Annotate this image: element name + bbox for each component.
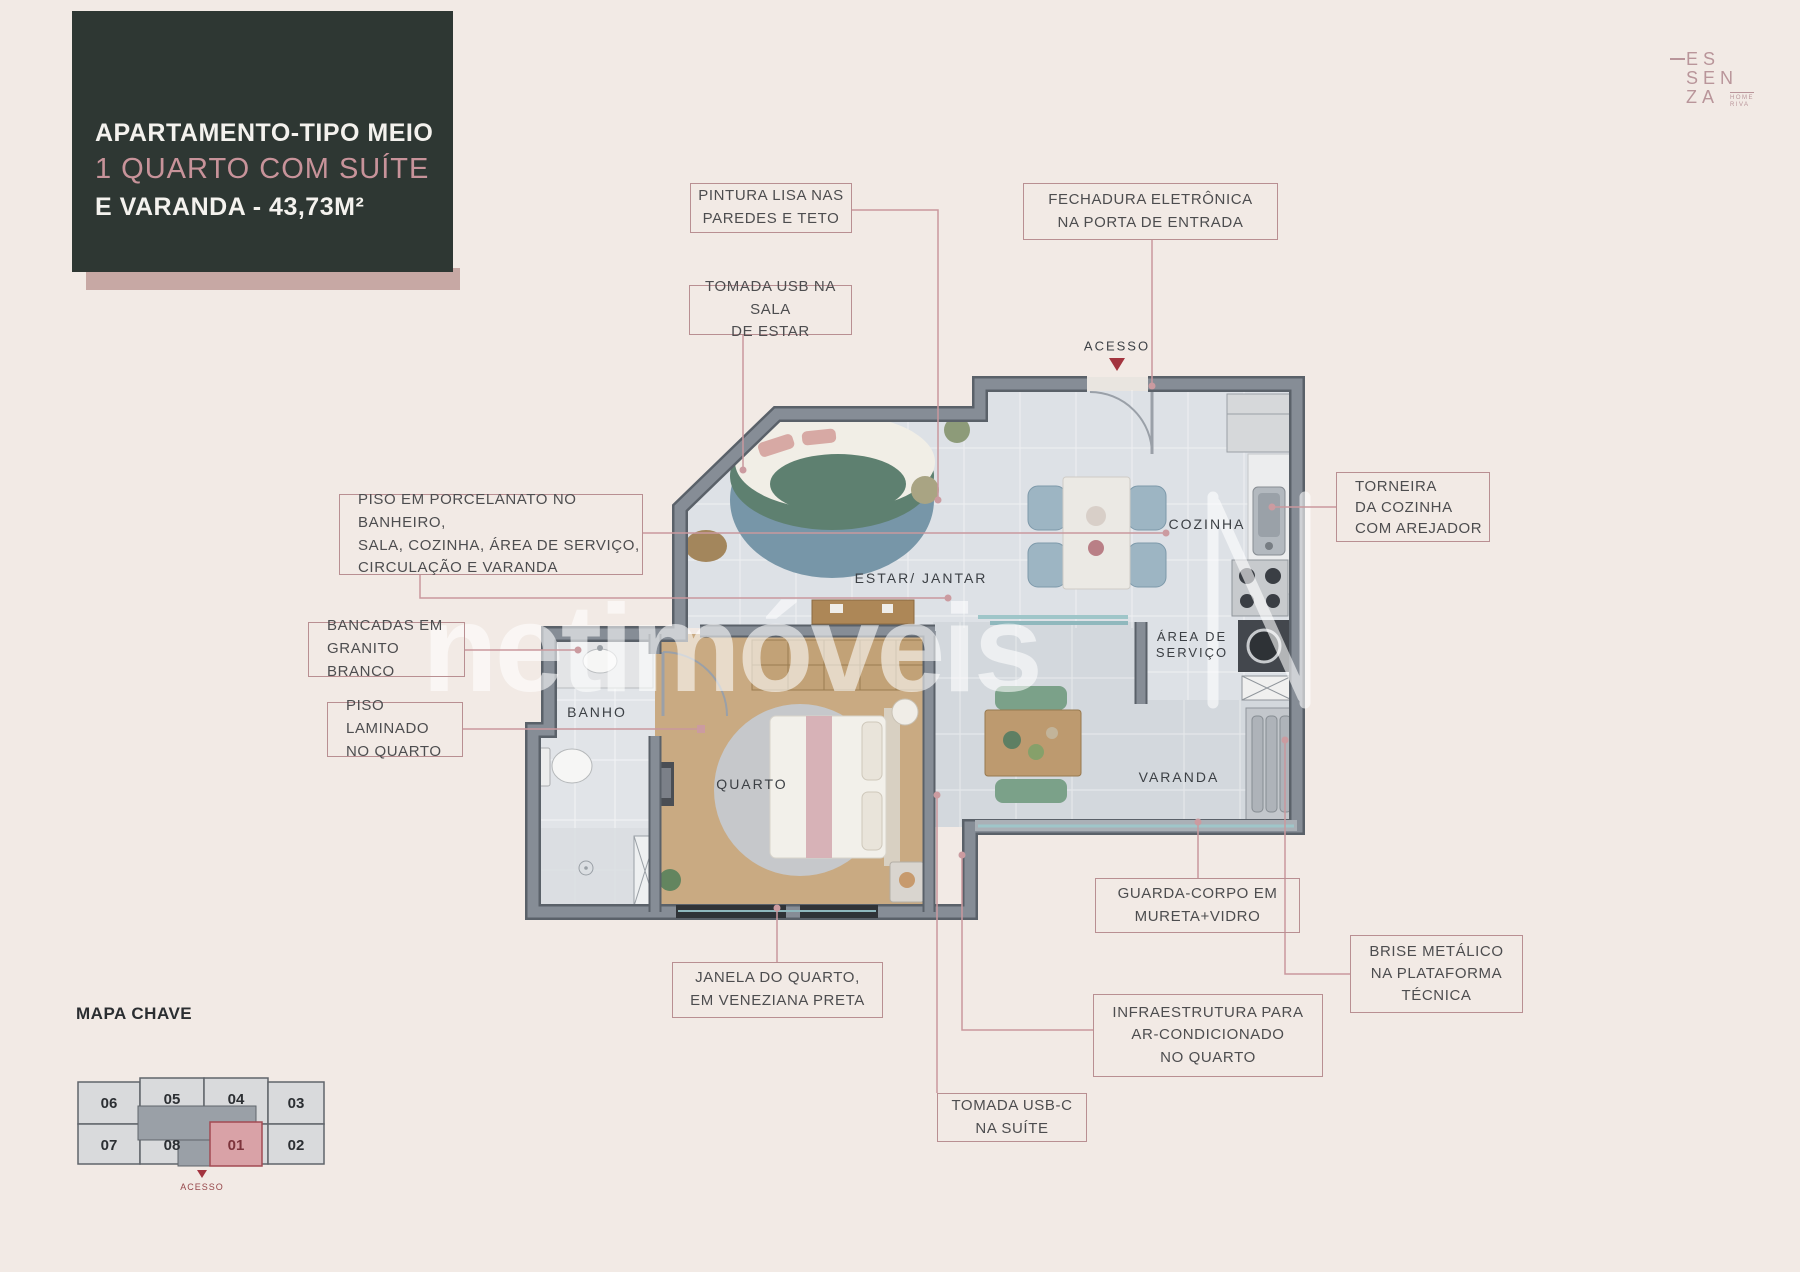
callout-infraestrutura: INFRAESTRUTURA PARA AR-CONDICIONADO NO Q… (1093, 994, 1323, 1077)
map-unit-05 (140, 1078, 204, 1124)
shower (533, 828, 656, 912)
tile-grid-banho (533, 634, 655, 912)
map-num-05: 05 (164, 1091, 181, 1108)
map-unit-04 (204, 1078, 268, 1124)
callout-piso-porcelanato: PISO EM PORCELANATO NO BANHEIRO, SALA, C… (339, 494, 643, 575)
map-unit-03 (268, 1082, 324, 1124)
page-title-line2: 1 QUARTO COM SUÍTE (95, 153, 453, 186)
map-acesso-label: ACESSO (180, 1182, 224, 1192)
label-area-servico-1: ÁREA DE (1156, 629, 1228, 645)
sofa (735, 414, 939, 514)
wardrobe (752, 640, 930, 690)
toilet (536, 748, 592, 786)
map-num-03: 03 (288, 1095, 305, 1112)
page-title-line1: APARTAMENTO-TIPO MEIO (95, 119, 453, 148)
label-area-servico-2: SERVIÇO (1156, 645, 1228, 661)
label-varanda: VARANDA (1139, 769, 1220, 785)
oven-washer (1238, 620, 1290, 672)
map-num-04: 04 (228, 1091, 245, 1108)
map-unit-06 (78, 1082, 140, 1124)
title-box: APARTAMENTO-TIPO MEIO 1 QUARTO COM SUÍTE… (72, 11, 453, 272)
cooktop (1232, 560, 1288, 616)
bedside-table (890, 862, 924, 902)
sideboard (812, 600, 914, 624)
label-banho: BANHO (567, 704, 627, 720)
map-num-06: 06 (101, 1095, 118, 1112)
callout-tomada-usb: TOMADA USB NA SALA DE ESTAR (689, 285, 852, 335)
map-unit-01-base (204, 1124, 268, 1164)
varanda-table-set (985, 686, 1081, 803)
floor-quarto (655, 634, 929, 912)
callout-tomada-usbc: TOMADA USB-C NA SUÍTE (937, 1093, 1087, 1142)
tile-grid-varanda (933, 622, 1290, 827)
bath-counter (553, 638, 653, 688)
logo-subtext: HOME RIVA (1730, 92, 1754, 109)
dining-set (1028, 477, 1166, 589)
label-quarto: QUARTO (716, 776, 787, 792)
door-arcs (663, 392, 1152, 716)
callout-pintura: PINTURA LISA NAS PAREDES E TETO (690, 183, 852, 233)
label-estar-jantar: ESTAR/ JANTAR (855, 570, 988, 586)
key-map: 06 05 04 03 07 08 01 02 ACESSO (60, 1060, 340, 1200)
callout-torneira: TORNEIRA DA COZINHA COM AREJADOR (1336, 472, 1490, 542)
floor-varanda (933, 622, 1290, 827)
map-unit-07 (78, 1124, 140, 1164)
page-title-line3: E VARANDA - 43,73M² (95, 193, 453, 222)
map-unit-01-highlight (210, 1122, 262, 1166)
pouf (685, 530, 727, 562)
map-num-08: 08 (164, 1137, 181, 1154)
callout-bancadas: BANCADAS EM GRANITO BRANCO (308, 622, 465, 677)
map-core (138, 1106, 256, 1140)
logo-line2: SEN (1686, 69, 1738, 88)
plant-quarto (659, 869, 681, 891)
logo-dash (1670, 58, 1685, 60)
map-core-stem (178, 1140, 214, 1166)
label-acesso: ACESSO (1084, 339, 1150, 354)
watermark-text: netimóveis (422, 578, 1040, 720)
map-num-01: 01 (228, 1137, 245, 1154)
map-acesso-arrow (197, 1170, 207, 1178)
kitchen-counter-sink (1248, 454, 1290, 594)
callout-janela: JANELA DO QUARTO, EM VENEZIANA PRETA (672, 962, 883, 1018)
fridge (1227, 394, 1290, 452)
bed (770, 708, 900, 866)
plant-living (944, 417, 970, 443)
callout-piso-laminado: PISO LAMINADO NO QUARTO (327, 702, 463, 757)
map-unit-02 (268, 1124, 324, 1164)
floor-banho (533, 634, 655, 912)
living-rug (730, 422, 934, 578)
map-num-07: 07 (101, 1137, 118, 1154)
stool (892, 699, 918, 725)
service-box (1242, 676, 1292, 700)
key-map-title: MAPA CHAVE (76, 1004, 192, 1024)
dresser (658, 762, 674, 806)
entry-recess (1087, 377, 1148, 391)
label-cozinha: COZINHA (1169, 516, 1246, 532)
map-unit-08 (140, 1124, 204, 1164)
callout-fechadura: FECHADURA ELETRÔNICA NA PORTA DE ENTRADA (1023, 183, 1278, 240)
logo-line1: ES (1686, 50, 1738, 69)
callout-guarda-corpo: GUARDA-CORPO EM MURETA+VIDRO (1095, 878, 1300, 933)
technical-platform (1246, 708, 1296, 820)
map-num-02: 02 (288, 1137, 305, 1154)
callout-brise: BRISE METÁLICO NA PLATAFORMA TÉCNICA (1350, 935, 1523, 1013)
